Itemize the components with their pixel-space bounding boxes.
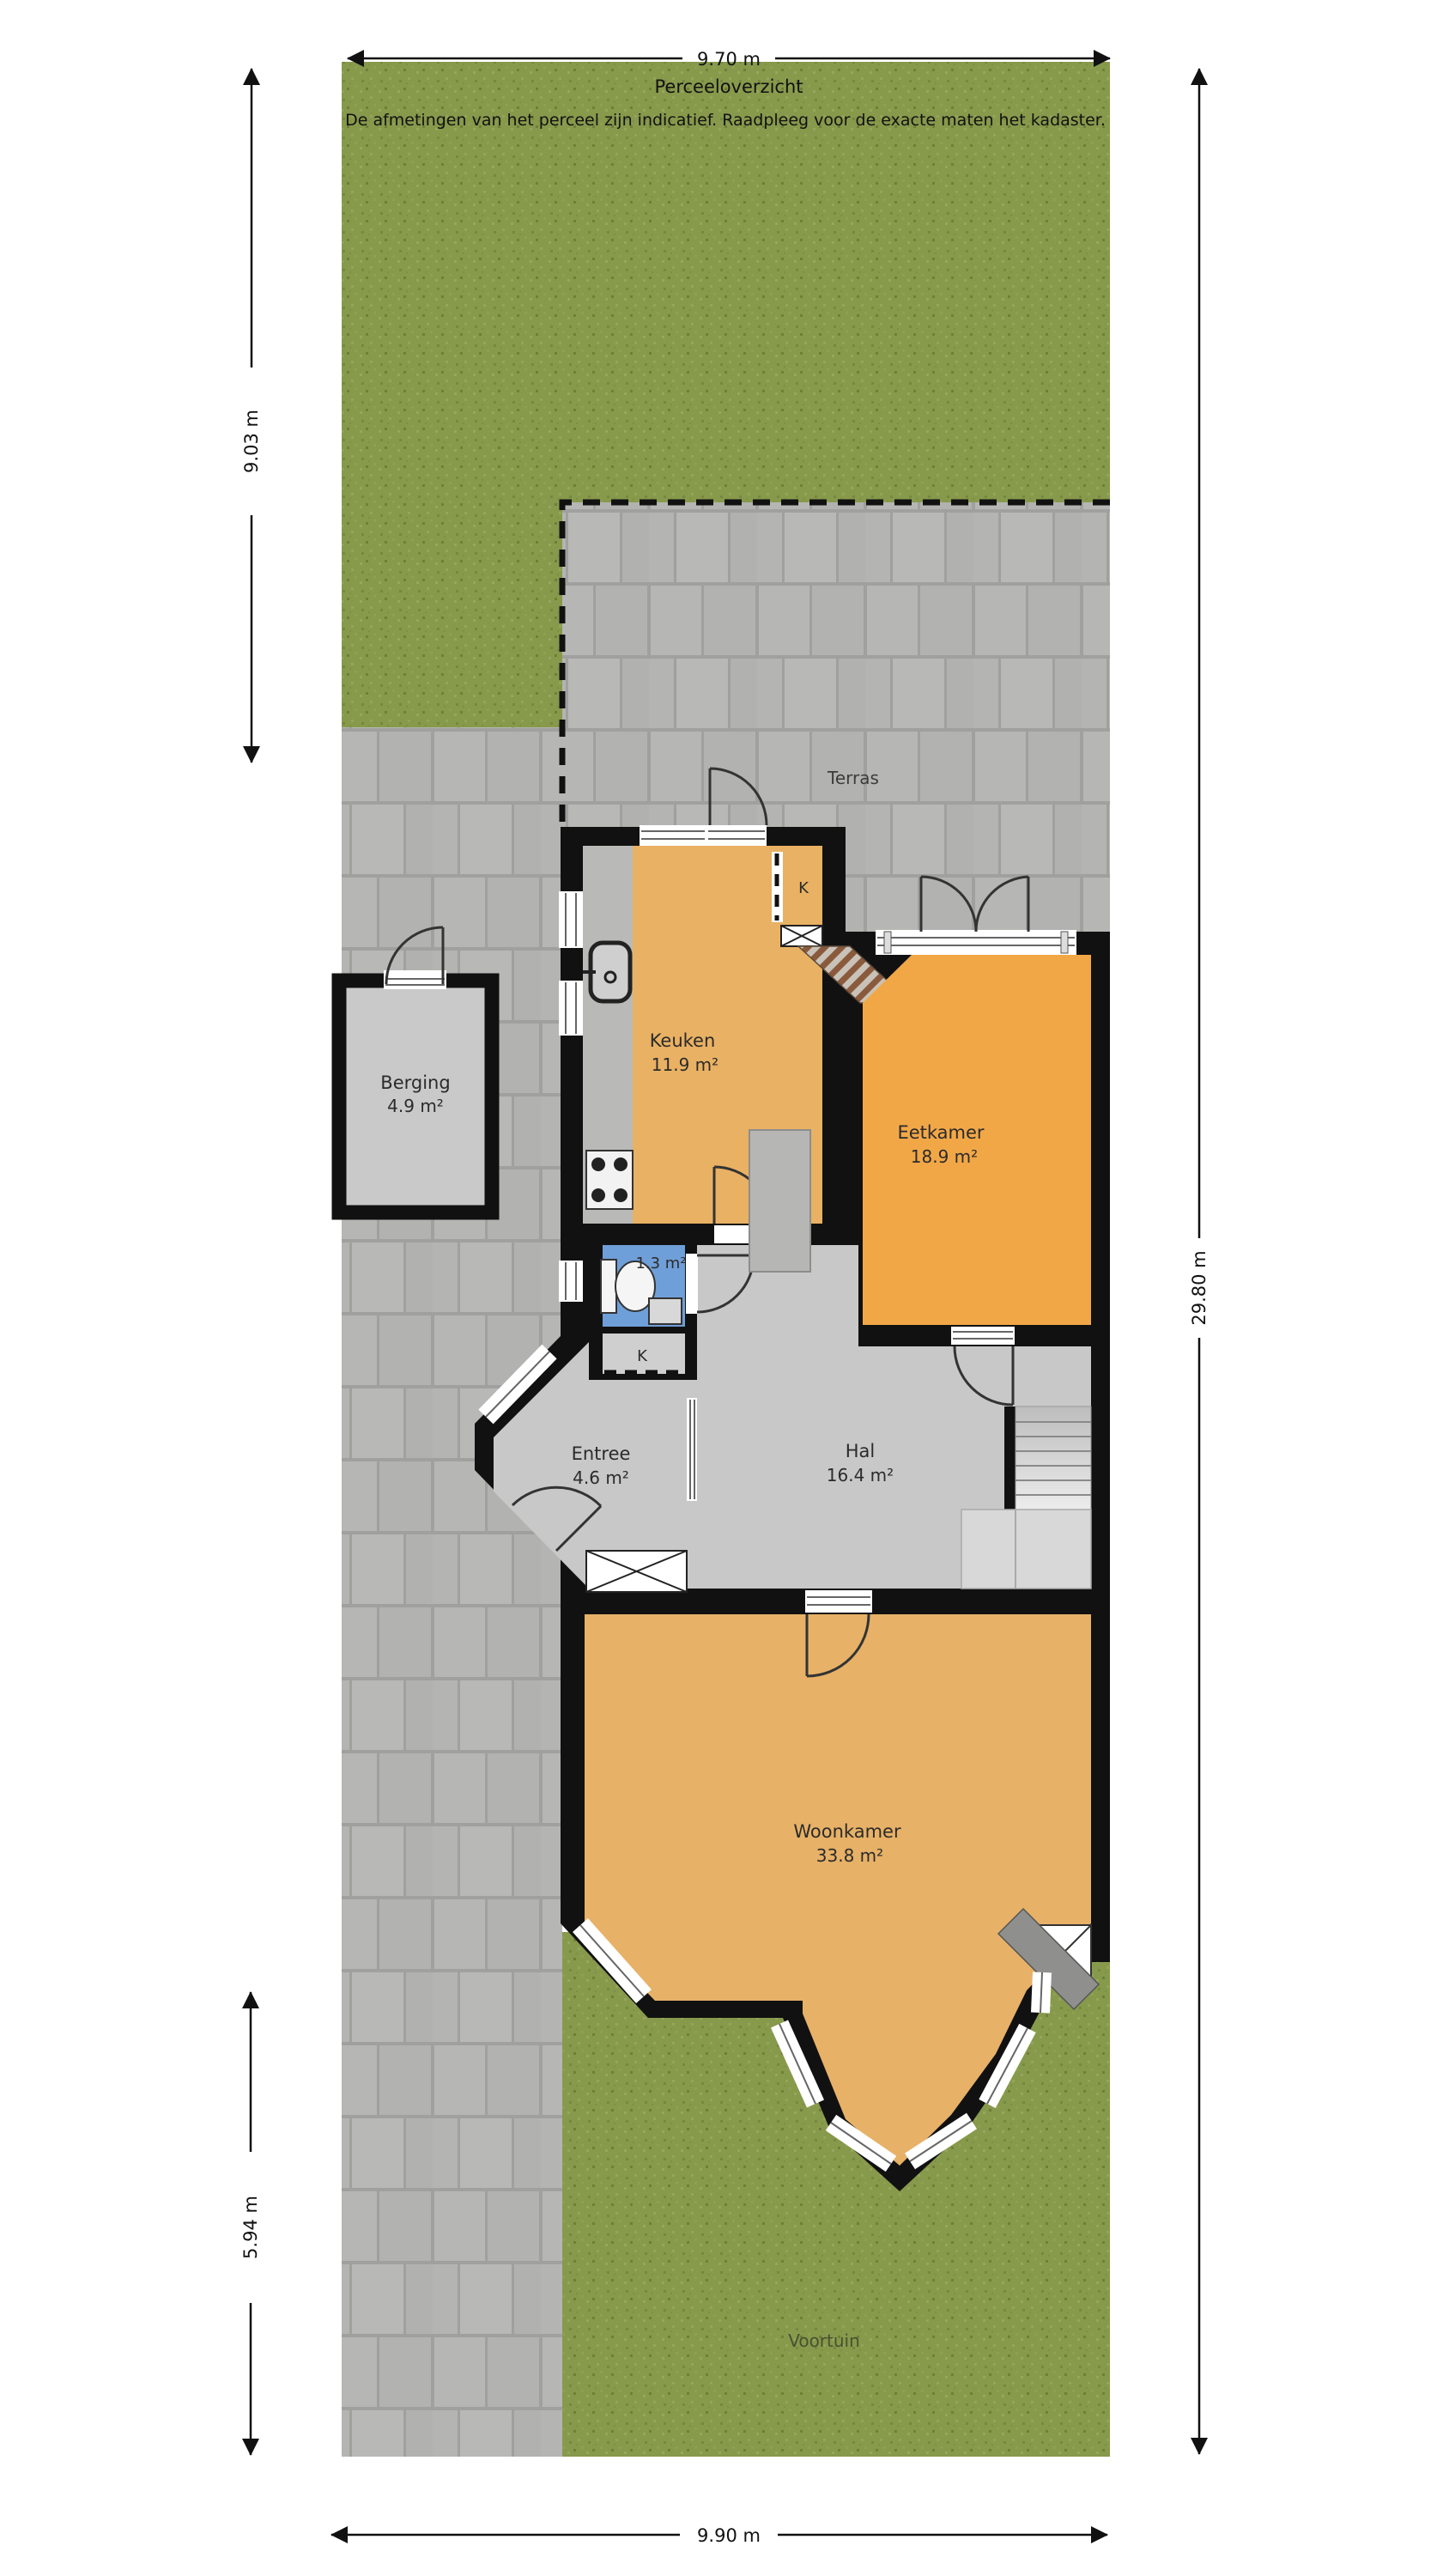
entree-label: Entree [572, 1443, 631, 1464]
floorplan-page: Berging 4.9 m² K K [0, 0, 1449, 2576]
hal-label: Hal [846, 1441, 876, 1461]
window-seat-x-box [586, 1551, 687, 1592]
eetkamer-label: Eetkamer [897, 1122, 984, 1143]
keuken-window-left-2 [559, 981, 583, 1036]
entree-hal-door [687, 1398, 697, 1501]
eetkamer-area: 18.9 m² [911, 1146, 978, 1167]
chimney-column [749, 1130, 810, 1272]
toilet-window [559, 1261, 583, 1302]
closet-k1: K [772, 852, 822, 922]
hal-area: 16.4 m² [827, 1465, 894, 1485]
dim-left-upper-label: 9.03 m [241, 410, 262, 473]
berging-area: 4.9 m² [387, 1096, 444, 1116]
keuken-label: Keuken [650, 1030, 716, 1051]
keuken-window-left-1 [559, 891, 583, 948]
toilet-area: 1.3 m² [635, 1255, 686, 1273]
woonkamer-area: 33.8 m² [816, 1845, 883, 1866]
page-title: Perceeloverzicht [654, 76, 803, 97]
keuken-area: 11.9 m² [652, 1054, 718, 1075]
dim-bottom-label: 9.90 m [697, 2525, 761, 2546]
top-dimension-label: 9.70 m [697, 49, 761, 70]
voortuin-label: Voortuin [788, 2330, 860, 2351]
dim-left-lower-label: 5.94 m [240, 2196, 261, 2259]
berging-label: Berging [380, 1072, 450, 1093]
entree-area: 4.6 m² [573, 1467, 629, 1488]
closet-k2-label: K [637, 1347, 648, 1365]
toilet-tank [601, 1260, 616, 1313]
toilet-sink [649, 1298, 682, 1324]
terras-label: Terras [827, 768, 879, 788]
stove [586, 1151, 633, 1209]
dim-right-label: 29.80 m [1189, 1250, 1210, 1325]
siteplan-canvas: Berging 4.9 m² K K [0, 0, 1449, 2576]
woonkamer-label: Woonkamer [793, 1821, 901, 1842]
cabinet-x-box [781, 926, 822, 946]
disclaimer-text: De afmetingen van het perceel zijn indic… [345, 111, 1106, 130]
keuken-window-top [640, 825, 706, 846]
eetkamer-window-top [876, 930, 1076, 955]
closet-k1-label: K [798, 879, 809, 897]
closet-k2: K [603, 1334, 685, 1374]
